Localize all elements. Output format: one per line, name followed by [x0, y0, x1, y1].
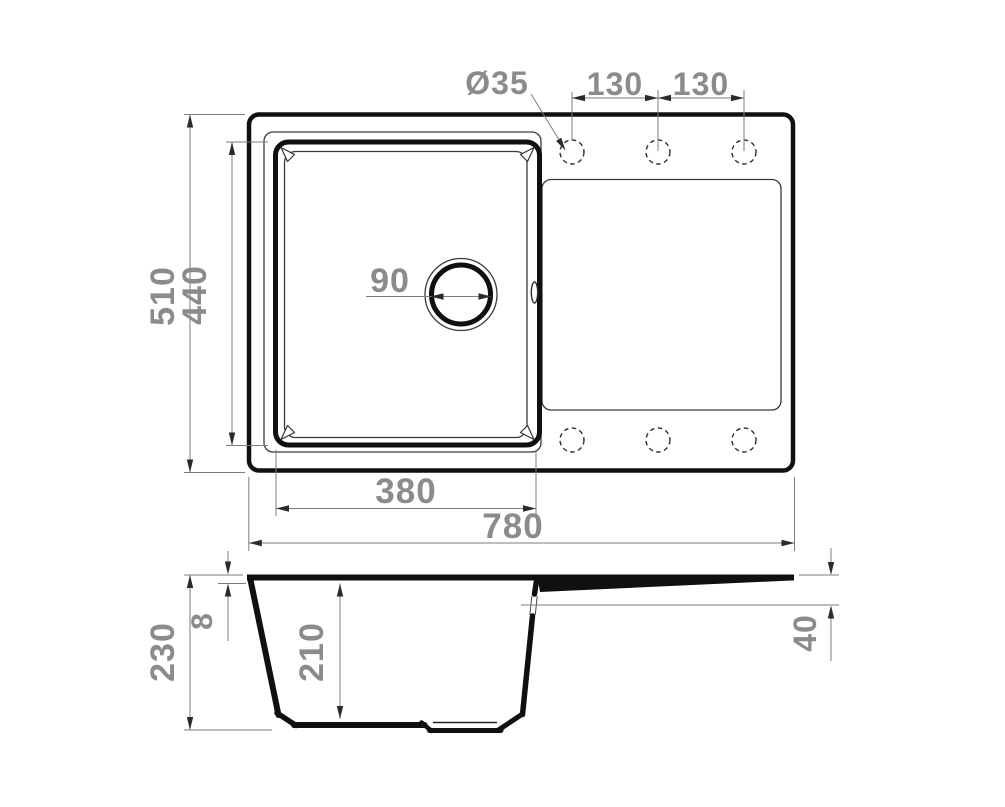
dim-label-rim-thickness: 8	[186, 612, 219, 630]
faucet-holes	[560, 140, 756, 452]
dimension-arrow	[731, 95, 744, 101]
dimension-arrow	[229, 433, 235, 446]
dim-label-hole-spacing-left: 130	[587, 66, 643, 102]
dimension-arrow	[276, 505, 289, 511]
corner-chamfer	[521, 148, 535, 162]
dim-label-drain-diameter: 90	[370, 262, 410, 300]
dimension-arrow	[337, 584, 343, 597]
dimension-arrow	[782, 540, 795, 546]
faucet-hole	[560, 428, 584, 452]
bowl-right-chamfer	[499, 714, 523, 730]
dimension-arrow	[249, 540, 262, 546]
sink-outer-edge	[249, 115, 793, 471]
dimension-arrow	[828, 562, 834, 575]
sink-dimension-drawing: Ø35 130 130 510 440 90 380 780	[0, 0, 1005, 807]
dimension-arrow	[187, 717, 193, 730]
overflow-slot	[531, 282, 537, 303]
dimension-arrow	[187, 115, 193, 128]
dimension-arrow	[337, 706, 343, 719]
dimension-arrow	[658, 95, 671, 101]
dim-label-bowl-outer-width: 380	[375, 472, 436, 511]
faucet-hole	[560, 140, 584, 164]
dim-label-hole-spacing-right: 130	[673, 66, 729, 102]
dim-label-bowl-outer-depth: 440	[176, 265, 214, 325]
dim-label-overflow-drop: 40	[787, 614, 823, 652]
dim-label-overall-width: 780	[482, 507, 543, 546]
faucet-hole	[732, 428, 756, 452]
dim-label-overall-height: 230	[144, 622, 182, 682]
dimensions-top-view: Ø35 130 130 510 440 90 380 780	[144, 65, 795, 551]
corner-chamfer	[281, 148, 295, 162]
top-view	[249, 115, 793, 471]
dimension-arrow	[229, 142, 235, 155]
dimension-arrow	[225, 584, 231, 597]
drawing-canvas: Ø35 130 130 510 440 90 380 780	[0, 0, 1005, 807]
dimension-arrow	[187, 575, 193, 588]
bowl-right-wall-upper	[535, 581, 537, 594]
bowl-left-wall	[251, 580, 279, 715]
dimension-arrow	[572, 95, 585, 101]
bowl-right-wall-lower	[523, 616, 533, 715]
dimension-arrow	[187, 460, 193, 473]
dim-label-bowl-depth: 210	[293, 622, 331, 682]
dimension-arrow	[645, 95, 658, 101]
drainboard-panel	[542, 180, 781, 411]
corner-chamfer	[521, 426, 535, 440]
dimension-arrow	[225, 562, 231, 575]
faucet-hole	[646, 428, 670, 452]
dimension-arrow	[828, 606, 834, 619]
drain-flange-circle	[425, 259, 497, 331]
dim-label-faucet-hole-diameter: Ø35	[465, 65, 528, 101]
